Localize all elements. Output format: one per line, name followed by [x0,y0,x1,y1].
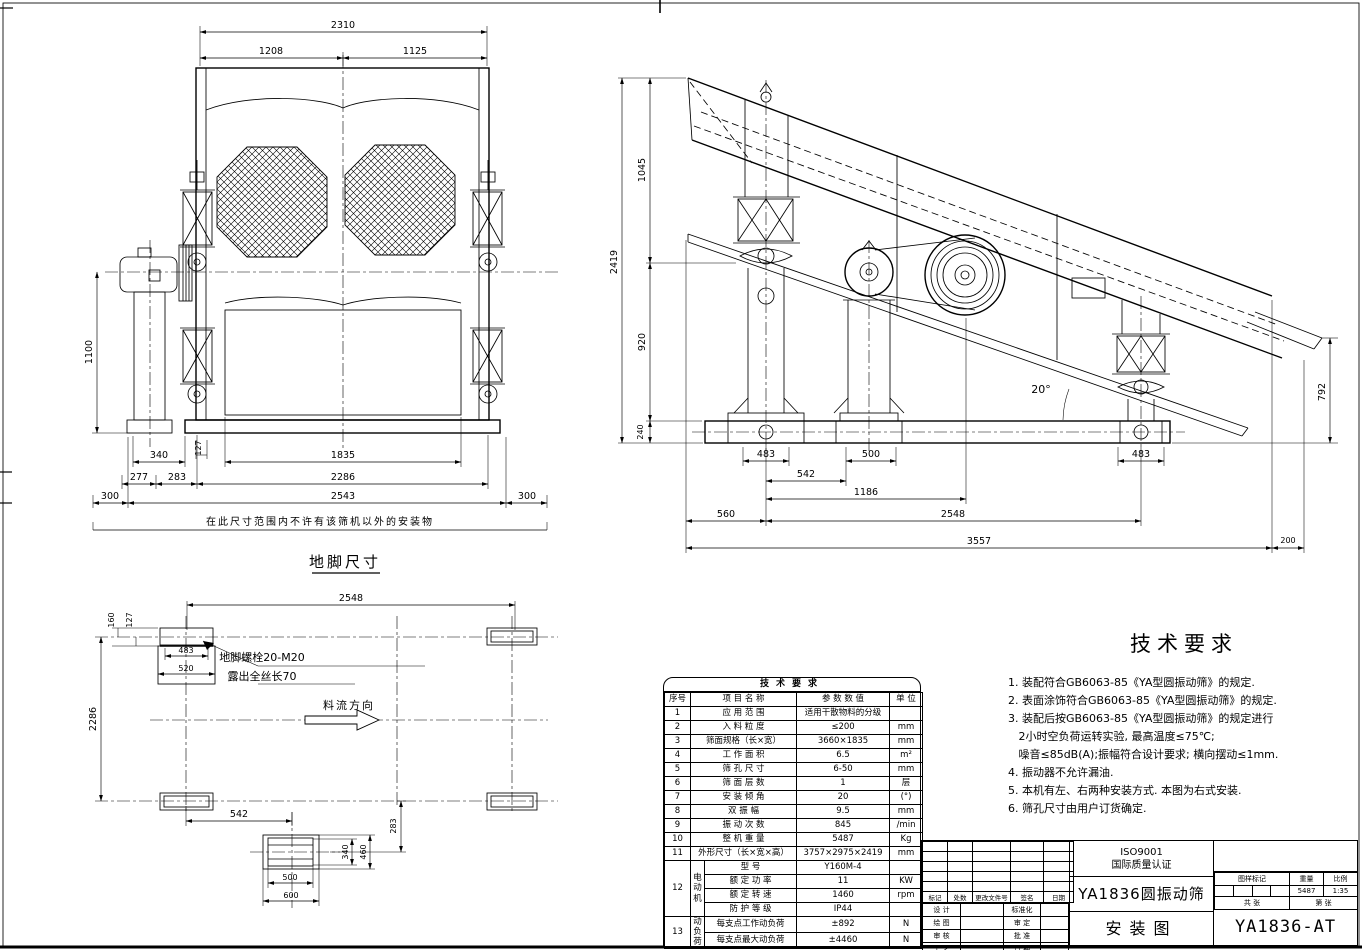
table-row: 2入 料 粒 度≤200mm [665,721,923,735]
param-cell: 6.5 [797,749,890,763]
param-cell: 适用干散物料的分级 [797,707,890,721]
plan-view: 2548 160 127 483 520 [88,593,558,908]
param-header: 参 数 数 值 [797,693,890,707]
signature-value [1041,917,1069,930]
revision-cell [948,862,973,872]
dim-label: 240 [636,424,645,439]
revision-cell [1011,842,1044,852]
signature-value [961,930,1004,943]
revision-header: 日期 [1044,892,1074,903]
param-table-title: 技术要求 [664,678,920,692]
table-row: 12电动机型 号Y160M-4 [665,861,923,875]
scale-value: 1:35 [1324,886,1358,897]
signature-label: 标准化 [1004,904,1041,917]
table-row: 11外形尺寸（长×宽×高）3757×2975×2419mm [665,847,923,861]
param-cell: 20 [797,791,890,805]
param-cell: ≤200 [797,721,890,735]
signature-value [1041,904,1069,917]
param-cell: rpm [890,889,923,903]
param-cell: 1460 [797,889,890,903]
technical-requirements: 技术要求 1. 装配符合GB6063-85《YA型圆振动筛》的规定. 2. 表面… [1008,628,1360,818]
table-row: 5筛 孔 尺 寸6-50mm [665,763,923,777]
product-name: YA1836圆振动筛 [1070,877,1213,912]
param-cell: 1 [797,777,890,791]
approval-box [1214,841,1357,872]
param-cell: 入 料 粒 度 [691,721,797,735]
sheet-number: 第 张 [1290,896,1358,909]
belt-drive [875,235,1005,315]
signature-value [961,917,1004,930]
param-cell: 振 动 次 数 [691,819,797,833]
revision-cell [923,882,948,892]
dim-label: 2286 [331,472,355,483]
clearance-note: 在此尺寸范围内不许有该筛机以外的安装物 [206,515,434,528]
param-cell: 防 护 等 级 [705,903,797,917]
flow-label: 料流方向 [323,698,375,712]
anchor-pad-bottom-left [160,793,213,810]
signature-row: 工 艺日 期 [923,943,1069,950]
dim-label: 277 [130,472,148,483]
param-cell: 845 [797,819,890,833]
sheet-total: 共 张 [1215,896,1290,909]
weight-value: 5487 [1290,886,1324,897]
tech-req-line: 4. 振动器不允许漏油. [1008,764,1360,782]
param-cell: N [890,917,923,933]
table-row: 10整 机 重 量5487Kg [665,833,923,847]
dim-label: 1835 [331,450,355,461]
support-left [728,80,804,452]
revision-cell [1044,872,1074,882]
param-cell: 电动机 [691,861,705,917]
param-cell: mm [890,721,923,735]
param-cell: mm [890,805,923,819]
param-cell: 外形尺寸（长×宽×高） [691,847,797,861]
signature-label: 工 艺 [923,943,961,950]
revision-cell [973,862,1011,872]
param-cell [890,707,923,721]
param-cell: 4 [665,749,691,763]
screen-body-side [688,78,1322,436]
param-cell: 12 [665,861,691,917]
info-table: 图样标记 重量 比例 5487 1:35 共 张 第 张 [1214,872,1358,910]
revision-header: 更改文件号 [973,892,1011,903]
param-cell: 双 振 幅 [691,805,797,819]
angle-label: 20° [1031,383,1051,396]
revision-cell [973,882,1011,892]
anchor-pad-top-left: 483 520 [158,628,215,684]
dim-label: 127 [125,612,134,627]
table-row: 13动负荷每支点工作动负荷±892N [665,917,923,933]
material-flow-arrow: 料流方向 [305,698,379,730]
param-cell: KW [890,875,923,889]
screen-housing [185,68,500,433]
dim-label: 340 [341,844,350,859]
revision-cell [1011,872,1044,882]
tech-req-line: 3. 装配后按GB6063-85《YA型圆振动筛》的规定进行 [1008,710,1360,728]
note-line: 地脚螺栓20-M20 [219,650,304,664]
param-header: 项 目 名 称 [691,693,797,707]
dim-label: 500 [862,449,880,460]
dim-label: 2310 [331,20,355,31]
mesh-panel-left [217,147,327,257]
dim-label: 3557 [967,536,991,547]
revision-cell [923,842,948,852]
tech-req-line: 6. 筛孔尺寸由用户订货确定. [1008,800,1360,818]
param-cell: 5487 [797,833,890,847]
dim-label: 160 [107,612,116,627]
param-header: 单 位 [890,693,923,707]
param-cell: 动负荷 [691,917,705,949]
dim-label: 127 [194,440,203,455]
signature-table: 设 计标准化绘 图审 定审 核批 准工 艺日 期 [922,903,1069,950]
dim-label: 340 [150,450,168,461]
signature-value [1041,930,1069,943]
param-cell: 3757×2975×2419 [797,847,890,861]
revision-header-row: 标记处数更改文件号签名日期 [923,892,1074,903]
param-cell: 型 号 [705,861,797,875]
signature-value [961,943,1004,950]
dim-label: 2286 [88,707,99,731]
revision-cell [1044,862,1074,872]
revision-cell [923,872,948,882]
revision-header: 标记 [923,892,948,903]
tech-req-line: 2. 表面涂饰符合GB6063-85《YA型圆振动筛》的规定. [1008,692,1360,710]
revision-cell [948,882,973,892]
param-cell [890,903,923,917]
front-view: 2310 1208 1125 [84,20,558,573]
param-cell: 11 [797,875,890,889]
revision-row [923,882,1074,892]
revision-cell [973,842,1011,852]
param-cell: 7 [665,791,691,805]
dim-label: 200 [1280,536,1295,545]
signature-label: 绘 图 [923,917,961,930]
param-cell: 6-50 [797,763,890,777]
param-cell: Kg [890,833,923,847]
tech-req-line: 1. 装配符合GB6063-85《YA型圆振动筛》的规定. [1008,674,1360,692]
param-cell: /min [890,819,923,833]
dim-label: 300 [518,491,536,502]
signature-value [1041,943,1069,950]
dim-label: 483 [178,646,193,655]
dim-label: 560 [717,509,735,520]
discharge-pad: 340 460 500 600 [263,835,375,906]
param-cell: ±4460 [797,932,890,948]
dim-label: 792 [1317,383,1328,401]
tech-req-line: 2小时空负荷运转实验, 最高温度≤75℃; [1008,728,1360,746]
param-cell: 筛 孔 尺 寸 [691,763,797,777]
signature-row: 设 计标准化 [923,904,1069,917]
title-block-right: 图样标记 重量 比例 5487 1:35 共 张 第 张 YA1836-AT [1214,841,1357,945]
table-row: 4工 作 面 积6.5m² [665,749,923,763]
revision-cell [1044,852,1074,862]
revision-row [923,862,1074,872]
table-row: 9振 动 次 数845/min [665,819,923,833]
drawing-sheet: 2310 1208 1125 [0,0,1362,950]
dim-label: 1208 [259,46,283,57]
dim-label: 460 [359,844,368,859]
revision-cell [1011,852,1044,862]
signature-value [961,904,1004,917]
revision-header: 签名 [1011,892,1044,903]
info-header: 重量 [1290,873,1324,886]
dim-label: 1186 [854,487,878,498]
signature-row: 审 核批 准 [923,930,1069,943]
param-cell: 13 [665,917,691,949]
cert-label: 国际质量认证 [1070,859,1213,872]
dim-label: 2419 [609,250,620,274]
param-cell: IP44 [797,903,890,917]
revision-cell [973,872,1011,882]
param-cell: 5 [665,763,691,777]
revision-row [923,852,1074,862]
param-cell [890,861,923,875]
param-cell: 筛面规格（长×宽） [691,735,797,749]
revision-cell [1044,882,1074,892]
param-header-row: 序号 项 目 名 称 参 数 数 值 单 位 [665,693,923,707]
dim-label: 2548 [339,593,363,604]
revision-cell [948,872,973,882]
dim-label: 283 [168,472,186,483]
signature-label: 批 准 [1004,930,1041,943]
certification: ISO9001 国际质量认证 [1070,841,1213,877]
param-cell: 每支点工作动负荷 [705,917,797,933]
param-cell: 筛 面 层 数 [691,777,797,791]
tech-req-line: 5. 本机有左、右两种安装方式. 本图为右式安装. [1008,782,1360,800]
mark-subcells [1215,886,1289,896]
dim-label: 542 [797,469,815,480]
param-cell: mm [890,735,923,749]
spring-assembly-right [470,160,505,403]
side-view: 2419 1045 920 240 483 500 483 542 1186 5… [609,78,1338,553]
signature-label: 日 期 [1004,943,1041,950]
plan-caption: 地脚尺寸 [309,553,381,571]
param-cell: m² [890,749,923,763]
support-right [1112,296,1170,452]
table-row: 8双 振 幅9.5mm [665,805,923,819]
revision-table: 标记处数更改文件号签名日期 [922,841,1074,903]
technical-parameters-table: 技术要求 序号 项 目 名 称 参 数 数 值 单 位 1应 用 范 围适用干散… [663,677,921,947]
info-header: 比例 [1324,873,1358,886]
param-cell: 8 [665,805,691,819]
param-cell: 额 定 功 率 [705,875,797,889]
param-cell: 2 [665,721,691,735]
param-cell: mm [890,763,923,777]
dim-label: 520 [178,664,193,673]
param-cell: 工 作 面 积 [691,749,797,763]
table-row: 1应 用 范 围适用干散物料的分级 [665,707,923,721]
revision-header: 处数 [948,892,973,903]
motor-front [120,240,192,447]
param-header: 序号 [665,693,691,707]
dim-label: 1125 [403,46,427,57]
tech-req-title: 技术要求 [1008,628,1360,658]
revision-cell [973,852,1011,862]
signature-label: 审 定 [1004,917,1041,930]
signature-row: 绘 图审 定 [923,917,1069,930]
iso-label: ISO9001 [1070,846,1213,859]
param-cell: Y160M-4 [797,861,890,875]
tech-req-line: 噪音≤85dB(A);振幅符合设计要求; 横向摆动≤1mm. [1008,746,1360,764]
revision-cell [923,862,948,872]
revision-cell [948,842,973,852]
signature-label: 审 核 [923,930,961,943]
revision-row [923,842,1074,852]
param-cell: 10 [665,833,691,847]
param-cell: 9.5 [797,805,890,819]
title-block-revisions: 标记处数更改文件号签名日期 设 计标准化绘 图审 定审 核批 准工 艺日 期 [922,841,1070,945]
table-row: 3筛面规格（长×宽）3660×1835mm [665,735,923,749]
dim-label: 283 [389,818,398,833]
dim-label: 2548 [941,509,965,520]
param-cell: (°) [890,791,923,805]
drawing-number: YA1836-AT [1214,910,1357,945]
dim-label: 600 [283,891,298,900]
dim-label: 542 [230,809,248,820]
dim-label: 2543 [331,491,355,502]
param-cell: 3 [665,735,691,749]
param-cell: 3660×1835 [797,735,890,749]
spring-assembly-left [180,160,215,403]
param-cell: 9 [665,819,691,833]
revision-cell [1044,842,1074,852]
signature-label: 设 计 [923,904,961,917]
param-cell: N [890,932,923,948]
title-block-center: ISO9001 国际质量认证 YA1836圆振动筛 安装图 [1070,841,1214,945]
dim-label: 920 [637,333,648,351]
param-cell: 每支点最大动负荷 [705,932,797,948]
param-cell: mm [890,847,923,861]
param-cell: 11 [665,847,691,861]
param-cell: 层 [890,777,923,791]
dim-label: 500 [282,873,297,882]
param-cell: 6 [665,777,691,791]
mesh-panel-right [345,145,455,255]
revision-cell [1011,862,1044,872]
param-cell: 安 装 倾 角 [691,791,797,805]
title-block: 标记处数更改文件号签名日期 设 计标准化绘 图审 定审 核批 准工 艺日 期 I… [921,840,1358,946]
table-row: 6筛 面 层 数1层 [665,777,923,791]
dim-label: 300 [101,491,119,502]
param-cell: 额 定 转 速 [705,889,797,903]
param-cell: 整 机 重 量 [691,833,797,847]
revision-cell [923,852,948,862]
revision-cell [1011,882,1044,892]
table-row: 7安 装 倾 角20(°) [665,791,923,805]
revision-cell [948,852,973,862]
anchor-bolt-note: 地脚螺栓20-M20 露出全丝长70 [203,641,425,684]
info-header: 图样标记 [1215,873,1290,886]
dim-label: 1045 [637,158,648,182]
note-line: 露出全丝长70 [228,669,297,683]
dim-label: 1100 [84,340,95,364]
revision-row [923,872,1074,882]
param-cell: 应 用 范 围 [691,707,797,721]
drawing-type: 安装图 [1070,912,1213,945]
param-cell: 1 [665,707,691,721]
param-cell: ±892 [797,917,890,933]
